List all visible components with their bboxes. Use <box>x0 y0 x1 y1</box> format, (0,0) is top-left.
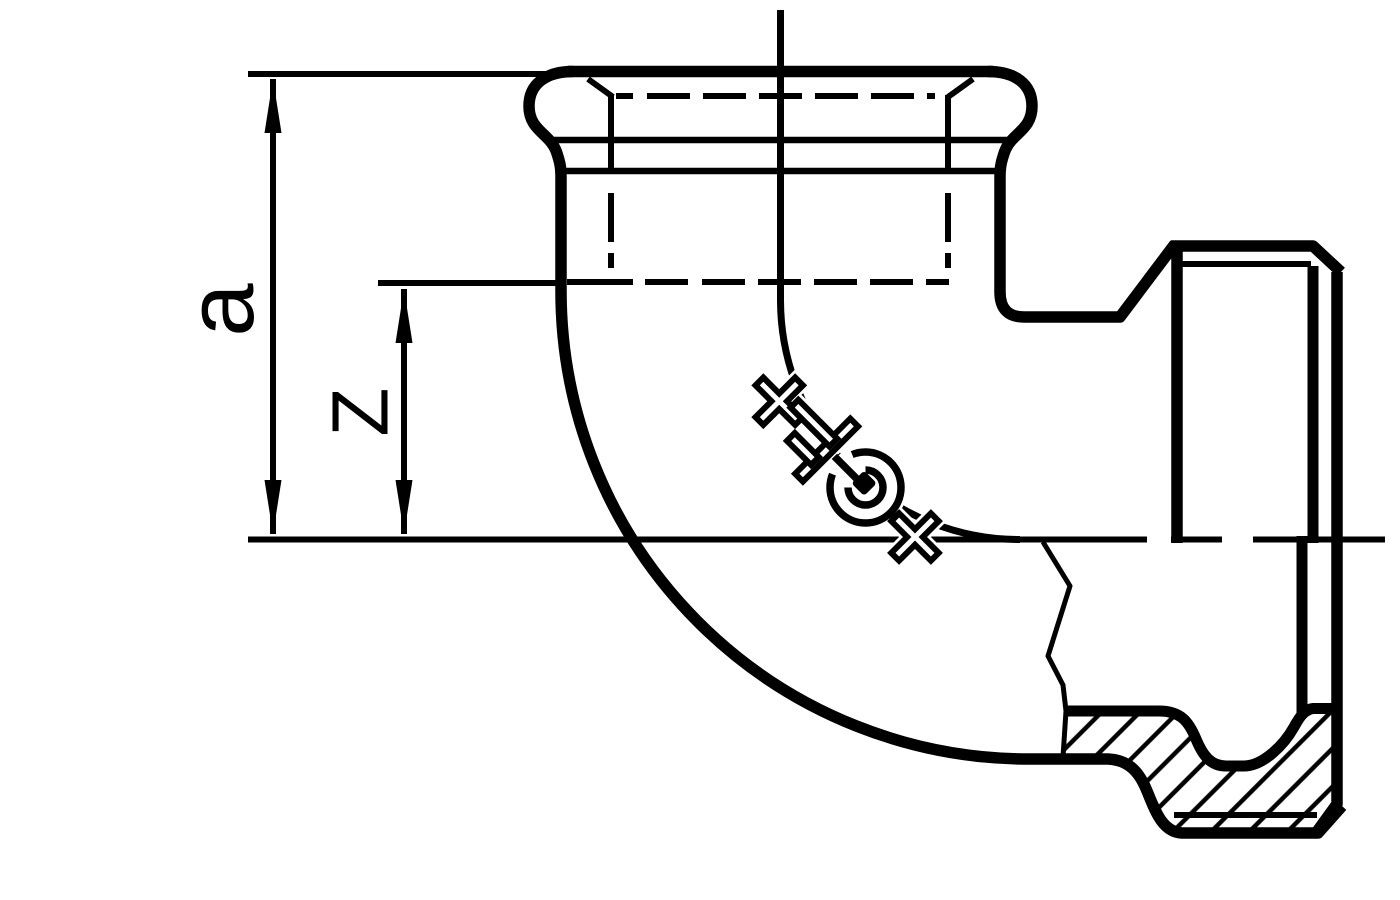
svg-text:a: a <box>167 283 274 337</box>
svg-text:Z: Z <box>316 388 405 437</box>
